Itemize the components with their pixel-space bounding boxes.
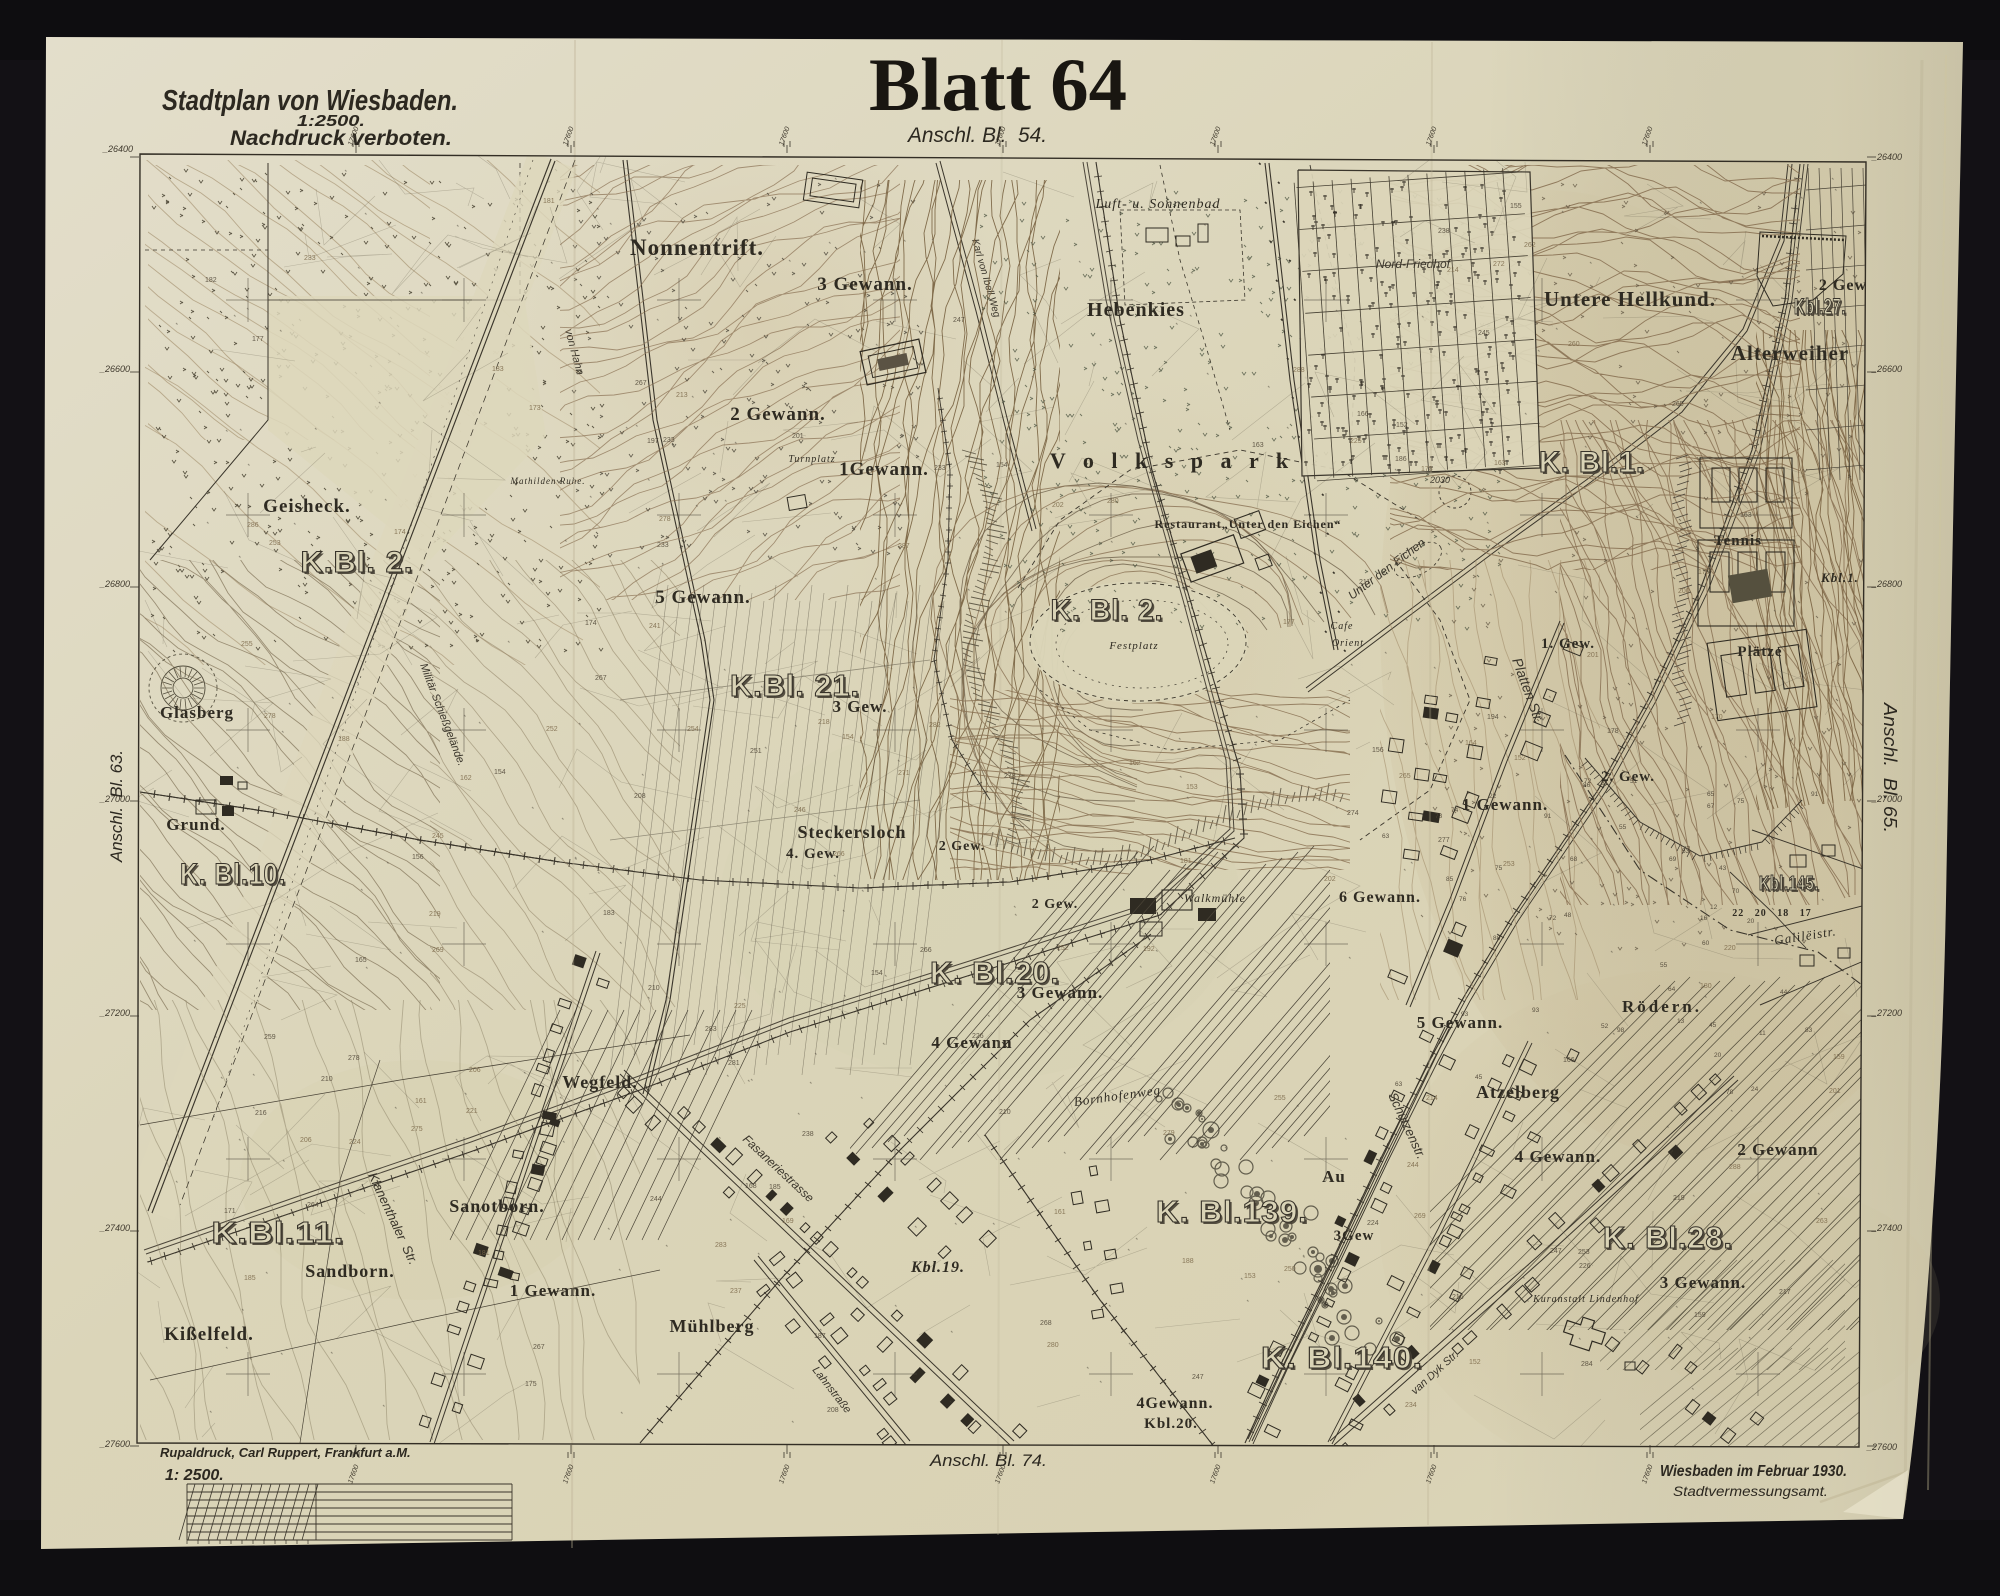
svg-text:4 Gewann: 4 Gewann (931, 1033, 1012, 1052)
svg-text:253: 253 (1503, 861, 1515, 868)
svg-text:275: 275 (411, 1126, 423, 1133)
svg-text:154: 154 (996, 462, 1008, 469)
svg-text:45: 45 (1475, 1074, 1483, 1081)
svg-text:181: 181 (543, 198, 555, 205)
svg-text:Cafe: Cafe (1331, 621, 1354, 632)
svg-text:155: 155 (1510, 203, 1522, 210)
svg-text:221: 221 (466, 1108, 478, 1115)
svg-text:Rupaldruck, Carl Ruppert, Fran: Rupaldruck, Carl Ruppert, Frankfurt a.M. (160, 1445, 411, 1460)
svg-text:238: 238 (1438, 228, 1450, 235)
svg-text:210: 210 (321, 1076, 333, 1083)
svg-text:154: 154 (494, 769, 506, 776)
svg-text:164: 164 (1465, 740, 1477, 747)
svg-text:156: 156 (412, 854, 424, 861)
svg-text:_26800: _26800 (1871, 579, 1902, 589)
svg-text:Wiesbaden im Februar 1930.: Wiesbaden im Februar 1930. (1660, 1463, 1847, 1480)
svg-text:216: 216 (255, 1110, 267, 1117)
svg-text:16: 16 (1700, 915, 1708, 922)
svg-text:_26600: _26600 (99, 364, 130, 374)
svg-text:214: 214 (1426, 1095, 1438, 1102)
svg-text:174: 174 (585, 620, 597, 627)
svg-text:185: 185 (244, 1275, 256, 1282)
svg-text:159: 159 (1833, 1054, 1845, 1061)
svg-text:201: 201 (1587, 652, 1599, 659)
svg-text:208: 208 (827, 1407, 839, 1414)
svg-text:263: 263 (1816, 1218, 1828, 1225)
svg-text:180: 180 (1700, 983, 1712, 990)
svg-text:Nord-Friedhof: Nord-Friedhof (1376, 257, 1452, 271)
svg-text:166: 166 (1357, 411, 1369, 418)
svg-text:267: 267 (533, 1344, 545, 1351)
svg-text:_27400: _27400 (99, 1223, 130, 1233)
svg-text:K.Bl. 2.: K.Bl. 2. (301, 546, 414, 579)
svg-text:Steckersloch: Steckersloch (798, 822, 907, 842)
svg-text:3 Gewann.: 3 Gewann. (817, 274, 913, 295)
svg-text:2030: 2030 (1429, 475, 1450, 485)
svg-text:201: 201 (1829, 1088, 1841, 1095)
svg-text:_27200: _27200 (99, 1008, 130, 1018)
svg-text:210: 210 (648, 985, 660, 992)
svg-text:206: 206 (469, 1067, 481, 1074)
svg-text:280: 280 (1047, 1342, 1059, 1349)
svg-text:75: 75 (1737, 798, 1745, 805)
svg-text:86: 86 (1583, 782, 1591, 789)
svg-text:76: 76 (1459, 896, 1467, 903)
svg-text:52: 52 (1601, 1023, 1609, 1030)
svg-text:218: 218 (818, 719, 830, 726)
svg-text:211: 211 (1359, 579, 1370, 586)
svg-text:247: 247 (1550, 1248, 1562, 1255)
svg-text:Kbl.19.: Kbl.19. (910, 1259, 965, 1276)
svg-text:85: 85 (1446, 876, 1454, 883)
svg-text:246: 246 (794, 807, 806, 814)
svg-text:272: 272 (1493, 261, 1505, 268)
svg-text:255: 255 (1274, 1095, 1286, 1102)
svg-text:68: 68 (1570, 856, 1578, 863)
svg-text:93: 93 (1532, 1007, 1540, 1014)
svg-text:269: 269 (1414, 1213, 1426, 1220)
svg-text:185: 185 (769, 1184, 781, 1191)
svg-text:98: 98 (1617, 1027, 1625, 1034)
svg-text:173: 173 (529, 405, 541, 412)
svg-text:K. Bl.10.: K. Bl.10. (180, 858, 286, 891)
svg-text:156: 156 (1372, 747, 1384, 754)
svg-text:48: 48 (1564, 912, 1572, 919)
svg-text:Mühlberg: Mühlberg (669, 1316, 754, 1336)
svg-text:Anschl. Bl. 65.: Anschl. Bl. 65. (1880, 702, 1900, 833)
svg-text:233: 233 (657, 542, 669, 549)
svg-text:216: 216 (1452, 1294, 1464, 1301)
svg-text:43: 43 (1719, 865, 1727, 872)
svg-text:283: 283 (705, 1026, 717, 1033)
svg-text:259: 259 (264, 1034, 276, 1041)
svg-text:55: 55 (1660, 962, 1668, 969)
svg-text:238: 238 (802, 1131, 814, 1138)
svg-text:3 Gewann.: 3 Gewann. (1660, 1273, 1746, 1292)
svg-text:264: 264 (307, 1202, 319, 1209)
svg-text:169: 169 (782, 1218, 794, 1225)
svg-text:183: 183 (492, 366, 504, 373)
svg-text:163: 163 (1740, 512, 1752, 519)
svg-text:225: 225 (1350, 438, 1362, 445)
svg-text:278: 278 (348, 1055, 360, 1062)
svg-text:Nachdruck verboten.: Nachdruck verboten. (230, 127, 452, 150)
svg-text:266: 266 (920, 947, 932, 954)
svg-text:202: 202 (1052, 502, 1064, 509)
svg-text:152: 152 (1469, 1359, 1481, 1366)
svg-text:78: 78 (1726, 1089, 1734, 1096)
svg-text:12: 12 (1710, 904, 1718, 911)
svg-text:262: 262 (1524, 242, 1536, 249)
svg-text:K. Bl.139.: K. Bl.139. (1156, 1194, 1308, 1229)
svg-text:Kuranstalt Lindenhof: Kuranstalt Lindenhof (1532, 1294, 1639, 1305)
svg-text:278: 278 (264, 713, 276, 720)
svg-text:153: 153 (1244, 1273, 1256, 1280)
svg-text:Luft- u. Sonnenbad: Luft- u. Sonnenbad (1095, 197, 1221, 212)
svg-text:_27200: _27200 (1871, 1008, 1902, 1018)
svg-text:_27600: _27600 (1866, 1442, 1897, 1452)
svg-text:1Gewann.: 1Gewann. (839, 459, 929, 480)
svg-text:186: 186 (1395, 456, 1407, 463)
svg-text:288: 288 (1293, 367, 1305, 374)
svg-text:182: 182 (205, 277, 217, 284)
svg-text:154: 154 (871, 970, 883, 977)
svg-text:202: 202 (1324, 876, 1336, 883)
svg-text:2 Gew.: 2 Gew. (939, 839, 985, 854)
svg-text:Stadtvermessungsamt.: Stadtvermessungsamt. (1673, 1483, 1828, 1499)
svg-text:194: 194 (1487, 714, 1499, 721)
svg-text:4 Gewann.: 4 Gewann. (1515, 1147, 1601, 1166)
svg-text:22 20 18 17: 22 20 18 17 (1732, 908, 1812, 919)
svg-text:278: 278 (659, 516, 671, 523)
svg-text:70: 70 (1732, 888, 1740, 895)
svg-text:253: 253 (1578, 1249, 1590, 1256)
svg-text:161: 161 (415, 1098, 427, 1105)
svg-text:225: 225 (734, 1003, 746, 1010)
svg-text:224: 224 (349, 1139, 361, 1146)
svg-text:Nonnentrift.: Nonnentrift. (630, 235, 764, 260)
svg-text:2 Gewann: 2 Gewann (1737, 1140, 1818, 1159)
svg-text:Festplatz: Festplatz (1108, 640, 1158, 652)
svg-text:278: 278 (1004, 773, 1016, 780)
svg-text:Hebenkies: Hebenkies (1087, 299, 1185, 321)
svg-text:77: 77 (1683, 846, 1691, 853)
svg-text:161: 161 (1054, 1209, 1066, 1216)
svg-text:247: 247 (953, 317, 965, 324)
svg-text:Kbl.145.: Kbl.145. (1759, 873, 1819, 895)
svg-text:154: 154 (842, 734, 854, 741)
svg-text:2 Gew.: 2 Gew. (1032, 897, 1078, 912)
svg-text:281: 281 (728, 1060, 740, 1067)
svg-text:_26400: _26400 (1871, 152, 1902, 162)
svg-text:168: 168 (745, 1183, 757, 1190)
svg-text:K.Bl.11.: K.Bl.11. (212, 1215, 345, 1250)
svg-text:197: 197 (647, 438, 659, 445)
svg-text:282: 282 (929, 722, 941, 729)
svg-text:Kbl.1.: Kbl.1. (1820, 570, 1859, 585)
svg-text:13: 13 (1677, 1018, 1685, 1025)
svg-text:286: 286 (247, 522, 259, 529)
svg-text:152: 152 (1396, 422, 1408, 429)
svg-text:Kbl.20.: Kbl.20. (1144, 1416, 1198, 1432)
svg-text:152: 152 (1514, 755, 1526, 762)
svg-text:Geisheck.: Geisheck. (263, 496, 351, 517)
svg-text:3Gew: 3Gew (1334, 1228, 1375, 1244)
svg-text:_27600: _27600 (99, 1439, 130, 1449)
svg-text:277: 277 (1438, 837, 1450, 844)
svg-text:_27400: _27400 (1871, 1223, 1902, 1233)
svg-text:Sandborn.: Sandborn. (305, 1261, 395, 1281)
svg-text:251: 251 (750, 748, 762, 755)
svg-text:3 Gew.: 3 Gew. (832, 697, 887, 716)
svg-text:Au: Au (1322, 1167, 1346, 1186)
svg-text:11: 11 (1759, 1030, 1766, 1037)
svg-text:253: 253 (269, 540, 281, 547)
svg-text:63: 63 (1395, 1081, 1403, 1088)
svg-text:206: 206 (300, 1137, 312, 1144)
svg-text:220: 220 (1724, 945, 1736, 952)
svg-text:2 Gewann.: 2 Gewann. (730, 404, 826, 425)
svg-text:267: 267 (635, 380, 647, 387)
svg-text:254: 254 (687, 726, 699, 733)
svg-text:_27000: _27000 (1871, 794, 1902, 804)
svg-text:91: 91 (1811, 791, 1819, 798)
svg-text:60: 60 (1702, 940, 1710, 947)
svg-text:175: 175 (525, 1381, 537, 1388)
svg-text:268: 268 (1040, 1320, 1052, 1327)
svg-text:224: 224 (1367, 1220, 1379, 1227)
svg-text:Anschl. Bl. 63.: Anschl. Bl. 63. (107, 750, 126, 863)
svg-text:233: 233 (663, 437, 675, 444)
svg-text:Glasberg: Glasberg (160, 703, 234, 722)
svg-text:171: 171 (224, 1208, 236, 1215)
svg-text:63: 63 (1382, 833, 1390, 840)
svg-text:Turnplatz: Turnplatz (788, 454, 835, 465)
svg-text:45: 45 (1709, 1022, 1717, 1029)
svg-text:283: 283 (715, 1242, 727, 1249)
svg-text:Orient: Orient (1332, 638, 1364, 649)
svg-text:67: 67 (1707, 803, 1715, 810)
svg-text:_26600: _26600 (1871, 364, 1902, 374)
svg-text:267: 267 (595, 675, 607, 682)
svg-text:233: 233 (934, 465, 946, 472)
svg-text:271: 271 (898, 770, 910, 777)
svg-text:244: 244 (1407, 1162, 1419, 1169)
svg-text:153: 153 (1186, 784, 1198, 791)
svg-text:288: 288 (1729, 1164, 1741, 1171)
svg-text:210: 210 (999, 1109, 1011, 1116)
svg-text:159: 159 (1694, 1312, 1706, 1319)
svg-text:234: 234 (1405, 1402, 1417, 1409)
svg-text:237: 237 (730, 1288, 742, 1295)
svg-text:219: 219 (1673, 1195, 1685, 1202)
svg-text:83: 83 (1805, 1027, 1813, 1034)
svg-text:274: 274 (1347, 810, 1359, 817)
svg-text:245: 245 (1478, 330, 1490, 337)
svg-text:K. Bl. 2.: K. Bl. 2. (1051, 594, 1164, 627)
svg-text:217: 217 (1779, 1289, 1791, 1296)
svg-text:20: 20 (1714, 1052, 1722, 1059)
svg-text:177: 177 (252, 336, 264, 343)
svg-text:Blatt 64: Blatt 64 (869, 44, 1127, 127)
svg-text:64: 64 (1668, 986, 1676, 993)
svg-text:_26800: _26800 (99, 579, 130, 589)
svg-text:Plätze: Plätze (1737, 644, 1782, 660)
svg-text:72: 72 (1549, 915, 1557, 922)
svg-text:265: 265 (1399, 773, 1411, 780)
svg-text:88: 88 (1493, 935, 1501, 942)
svg-text:K. Bl.1.: K. Bl.1. (1539, 446, 1645, 479)
svg-text:K. Bl.28.: K. Bl.28. (1603, 1220, 1733, 1255)
svg-text:Kißelfeld.: Kißelfeld. (164, 1324, 254, 1345)
svg-text:188: 188 (338, 736, 350, 743)
svg-text:165: 165 (355, 957, 367, 964)
svg-text:269: 269 (432, 947, 444, 954)
svg-text:75: 75 (1495, 865, 1503, 872)
svg-text:245: 245 (432, 833, 444, 840)
svg-text:163: 163 (1494, 460, 1506, 467)
svg-text:208: 208 (634, 793, 646, 800)
svg-text:177: 177 (1283, 619, 1295, 626)
svg-text:219: 219 (429, 911, 441, 918)
svg-text:265: 265 (1672, 401, 1684, 408)
svg-text:Anschl. Bl. 54.: Anschl. Bl. 54. (906, 124, 1047, 147)
svg-text:174: 174 (394, 529, 406, 536)
svg-text:55: 55 (1619, 824, 1627, 831)
svg-text:166: 166 (1563, 1057, 1575, 1064)
svg-text:1. Gew.: 1. Gew. (1541, 636, 1595, 652)
svg-text:170: 170 (1711, 714, 1723, 721)
svg-text:5 Gewann.: 5 Gewann. (655, 587, 751, 608)
svg-text:2 Gew.: 2 Gew. (1819, 277, 1871, 294)
svg-text:181: 181 (478, 1250, 490, 1257)
svg-text:Walkmühle: Walkmühle (1184, 891, 1246, 905)
svg-text:24: 24 (1751, 1086, 1759, 1093)
svg-text:3 Gewann.: 3 Gewann. (1017, 983, 1103, 1002)
svg-text:187: 187 (814, 1333, 826, 1340)
svg-text:260: 260 (1568, 341, 1580, 348)
svg-text:Atzelberg: Atzelberg (1476, 1082, 1560, 1102)
svg-text:188: 188 (1182, 1258, 1194, 1265)
svg-text:213: 213 (676, 392, 688, 399)
svg-text:201: 201 (792, 433, 804, 440)
svg-text:V o l k s p a r k: V o l k s p a r k (1050, 448, 1294, 473)
svg-text:2. Gew.: 2. Gew. (1601, 769, 1655, 785)
svg-text:65: 65 (1707, 791, 1715, 798)
svg-text:4. Gew.: 4. Gew. (786, 846, 840, 862)
svg-text:Anschl. Bl. 74.: Anschl. Bl. 74. (929, 1451, 1047, 1470)
svg-text:6 Gewann.: 6 Gewann. (1339, 889, 1421, 906)
svg-text:255: 255 (241, 641, 253, 648)
svg-text:214: 214 (1447, 267, 1459, 274)
svg-text:K. Bl.140.: K. Bl.140. (1261, 1340, 1423, 1375)
svg-text:Grund.: Grund. (166, 815, 225, 834)
svg-text:279: 279 (1163, 1130, 1175, 1137)
svg-text:250: 250 (1284, 1266, 1296, 1273)
svg-text:244: 244 (650, 1196, 662, 1203)
svg-text:44: 44 (1780, 989, 1788, 996)
svg-text:69: 69 (1669, 856, 1677, 863)
svg-text:233: 233 (304, 255, 316, 262)
svg-text:252: 252 (1057, 945, 1069, 952)
svg-text:280: 280 (1107, 498, 1119, 505)
svg-text:170: 170 (1698, 569, 1710, 576)
svg-text:_26400: _26400 (102, 144, 133, 154)
svg-text:192: 192 (1143, 946, 1155, 953)
svg-text:1 Gewann.: 1 Gewann. (510, 1281, 596, 1300)
svg-text:226: 226 (1579, 1263, 1591, 1270)
svg-text:4Gewann.: 4Gewann. (1137, 1395, 1214, 1412)
svg-text:287: 287 (898, 543, 910, 550)
svg-text:1: 2500.: 1: 2500. (165, 1467, 224, 1484)
svg-text:252: 252 (546, 726, 558, 733)
svg-text:181: 181 (1180, 858, 1192, 865)
svg-text:Tennis: Tennis (1714, 533, 1762, 549)
svg-text:Untere Hellkund.: Untere Hellkund. (1544, 287, 1716, 311)
svg-text:247: 247 (1192, 1374, 1204, 1381)
svg-text:241: 241 (649, 623, 661, 630)
svg-text:74: 74 (1451, 807, 1459, 814)
svg-text:91: 91 (1544, 813, 1552, 820)
svg-text:Rödern.: Rödern. (1622, 997, 1702, 1016)
svg-text:178: 178 (1607, 728, 1619, 735)
svg-text:Sanotborn.: Sanotborn. (449, 1196, 545, 1216)
svg-text:73: 73 (1435, 813, 1443, 820)
svg-text:162: 162 (460, 775, 472, 782)
svg-text:284: 284 (1581, 1361, 1593, 1368)
svg-text:162: 162 (1129, 760, 1141, 767)
svg-text:Alterweiher: Alterweiher (1731, 341, 1849, 365)
svg-text:20: 20 (1747, 918, 1755, 925)
svg-text:Kbl.27.: Kbl.27. (1794, 294, 1846, 319)
svg-text:200: 200 (1678, 588, 1690, 595)
svg-text:Restaurant„Unter den Eichen“: Restaurant„Unter den Eichen“ (1154, 517, 1341, 531)
svg-text:1 Gewann.: 1 Gewann. (1462, 795, 1548, 814)
svg-text:_27000: _27000 (99, 794, 130, 804)
svg-text:183: 183 (603, 910, 615, 917)
